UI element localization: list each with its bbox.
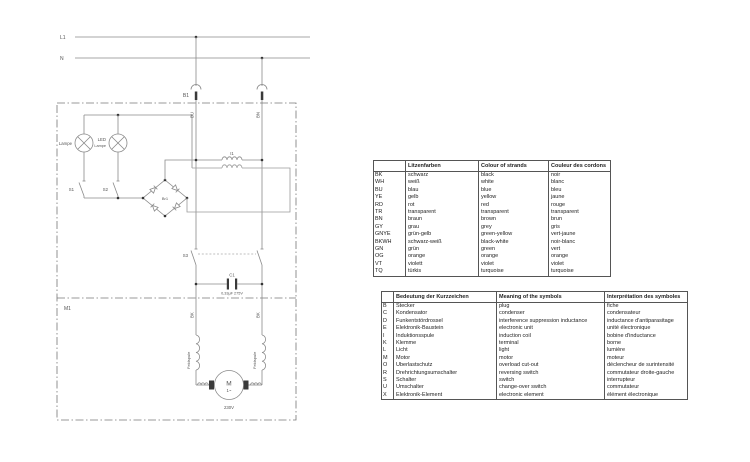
wire-color-row: BU blau blue bleu — [374, 187, 611, 194]
cell-german: blau — [406, 187, 479, 194]
cell-english: overload cut-out — [497, 362, 605, 369]
cell-german: Schalter — [394, 377, 497, 384]
header-code — [374, 161, 406, 172]
capacitor-c1 — [195, 279, 264, 290]
cell-french: borne — [605, 340, 688, 347]
switch-s2-label: S2 — [103, 187, 109, 192]
cell-french: fiche — [605, 303, 688, 311]
cell-english: electronic unit — [497, 325, 605, 332]
motor-voltage: 230V — [224, 405, 234, 410]
header-english: Meaning of the symbols — [497, 292, 605, 303]
led-lamp-label-2: Lampe — [94, 144, 106, 148]
cell-english: reversing switch — [497, 370, 605, 377]
cell-code: BU — [374, 187, 406, 194]
switch-s3-label: S3 — [183, 253, 189, 258]
cell-code: X — [382, 392, 394, 400]
switch-s1 — [79, 181, 86, 198]
cell-german: Elektronik-Element — [394, 392, 497, 400]
cell-german: Stecker — [394, 303, 497, 311]
cell-code: M — [382, 355, 394, 362]
wire-color-row: TR transparent transparent transparent — [374, 209, 611, 216]
header-french: Interprétation des symboles — [605, 292, 688, 303]
cell-french: transparent — [549, 209, 611, 216]
cell-english: green — [479, 246, 549, 253]
cell-code: BKWH — [374, 239, 406, 246]
cell-french: interrupteur — [605, 377, 688, 384]
cell-code: GN — [374, 246, 406, 253]
cell-english: condenser — [497, 310, 605, 317]
cell-german: grün-gelb — [406, 231, 479, 238]
cell-code: U — [382, 384, 394, 391]
cell-english: grey — [479, 224, 549, 231]
cell-french: gris — [549, 224, 611, 231]
bridge-label: Br1 — [162, 196, 169, 201]
wire-color-label-bk-right: BK — [256, 312, 261, 318]
field-coil-label-left: Feldspule — [186, 351, 191, 369]
cell-french: violet — [549, 261, 611, 268]
cell-german: gelb — [406, 194, 479, 201]
symbol-row: X Elektronik-Element electronic element … — [382, 392, 688, 400]
wire-color-row: GNYE grün-gelb green-yellow vert-jaune — [374, 231, 611, 238]
cell-code: BN — [374, 216, 406, 223]
choke-label: I1 — [230, 151, 234, 156]
cell-french: vert-jaune — [549, 231, 611, 238]
symbol-row: L Licht light lumière — [382, 347, 688, 354]
led-lamp-symbol — [109, 115, 127, 181]
symbol-row: O Überlastschutz overload cut-out déclen… — [382, 362, 688, 369]
cell-german: rot — [406, 202, 479, 209]
cell-french: turquoise — [549, 268, 611, 276]
header-english: Colour of strands — [479, 161, 549, 172]
symbol-row: M Motor motor moteur — [382, 355, 688, 362]
cell-german: grau — [406, 224, 479, 231]
cell-german: transparent — [406, 209, 479, 216]
cell-french: bleu — [549, 187, 611, 194]
symbol-row: K Klemme terminal borne — [382, 340, 688, 347]
cell-english: induction coil — [497, 333, 605, 340]
wire-color-row: OG orange orange orange — [374, 253, 611, 260]
module-label: M1 — [64, 306, 71, 312]
cell-french: condensateur — [605, 310, 688, 317]
cell-german: Funkentstördrossel — [394, 318, 497, 325]
n-line-label: N — [60, 56, 64, 62]
enclosure-border — [57, 103, 296, 420]
cell-german: weiß — [406, 179, 479, 186]
cell-english: electronic element — [497, 392, 605, 400]
cell-english: black-white — [479, 239, 549, 246]
cell-french: noir — [549, 172, 611, 180]
cell-german: Motor — [394, 355, 497, 362]
header-german: Bedeutung der Kurzzeichen — [394, 292, 497, 303]
cell-code: YE — [374, 194, 406, 201]
symbol-row: R Drehrichtungsumschalter reversing swit… — [382, 370, 688, 377]
header-german: Litzenfarben — [406, 161, 479, 172]
cell-french: commutateur — [605, 384, 688, 391]
cell-french: brun — [549, 216, 611, 223]
cell-code: BK — [374, 172, 406, 180]
capacitor-label: C1 — [229, 273, 235, 278]
cell-german: Licht — [394, 347, 497, 354]
cell-english: interference suppression inductance — [497, 318, 605, 325]
capacitor-value: 0,33µF 275V — [221, 292, 243, 296]
cell-french: rouge — [549, 202, 611, 209]
cell-code: E — [382, 325, 394, 332]
cell-english: white — [479, 179, 549, 186]
header-code — [382, 292, 394, 303]
plug-connector-left — [191, 85, 201, 250]
cell-german: Umschalter — [394, 384, 497, 391]
wire-color-row: BK schwarz black noir — [374, 172, 611, 180]
cell-code: GY — [374, 224, 406, 231]
cell-code: L — [382, 347, 394, 354]
cell-english: light — [497, 347, 605, 354]
cell-french: bobine d'inductance — [605, 333, 688, 340]
motor-brush-right — [244, 381, 249, 390]
cell-german: violett — [406, 261, 479, 268]
schematic-page: { "diagram": { "l1_label": "L1", "n_labe… — [0, 0, 750, 462]
cell-code: S — [382, 377, 394, 384]
cell-code: R — [382, 370, 394, 377]
cell-english: blue — [479, 187, 549, 194]
field-coil-label-right: Feldspule — [252, 351, 257, 369]
cell-german: Elektronik-Baustein — [394, 325, 497, 332]
junction-dot — [117, 197, 120, 200]
symbol-table-header-row: Bedeutung der Kurzzeichen Meaning of the… — [382, 292, 688, 303]
choke-i1 — [187, 157, 290, 212]
bridge-rectifier-br1 — [142, 160, 196, 217]
plug-connector-right — [257, 85, 267, 250]
header-french: Couleur des cordons — [549, 161, 611, 172]
wire-color-label-bk-left: BK — [190, 312, 195, 318]
cell-english: orange — [479, 253, 549, 260]
cell-english: yellow — [479, 194, 549, 201]
cell-code: VT — [374, 261, 406, 268]
cell-french: vert — [549, 246, 611, 253]
symbol-row: U Umschalter change-over switch commutat… — [382, 384, 688, 391]
wire-color-row: TQ türkis turquoise turquoise — [374, 268, 611, 276]
led-lamp-label-1: LED — [98, 137, 106, 142]
symbol-meaning-table: Bedeutung der Kurzzeichen Meaning of the… — [381, 291, 688, 400]
cell-english: motor — [497, 355, 605, 362]
cell-code: O — [382, 362, 394, 369]
cell-german: türkis — [406, 268, 479, 276]
cell-code: C — [382, 310, 394, 317]
cell-german: Kondensator — [394, 310, 497, 317]
cell-german: Klemme — [394, 340, 497, 347]
symbol-row: D Funkentstördrossel interference suppre… — [382, 318, 688, 325]
cell-english: plug — [497, 303, 605, 311]
symbol-row: B Stecker plug fiche — [382, 303, 688, 311]
cell-french: commutateur droite-gauche — [605, 370, 688, 377]
cell-german: schwarz — [406, 172, 479, 180]
cell-code: K — [382, 340, 394, 347]
cell-code: D — [382, 318, 394, 325]
symbol-row: I Induktionsspule induction coil bobine … — [382, 333, 688, 340]
motor-phase: 1~ — [227, 388, 232, 393]
cell-code: TQ — [374, 268, 406, 276]
cell-english: green-yellow — [479, 231, 549, 238]
plug-label: B1 — [183, 93, 189, 99]
motor-brush-left — [209, 381, 214, 390]
wire-color-row: VT violett violet violet — [374, 261, 611, 268]
wire-color-row: WH weiß white blanc — [374, 179, 611, 186]
wire-color-label-bn: BN — [256, 112, 261, 118]
cell-french: jaune — [549, 194, 611, 201]
cell-english: red — [479, 202, 549, 209]
symbol-row: C Kondensator condenser condensateur — [382, 310, 688, 317]
cell-code: RD — [374, 202, 406, 209]
cell-german: grün — [406, 246, 479, 253]
switch-s1-label: S1 — [69, 187, 75, 192]
symbol-row: S Schalter switch interrupteur — [382, 377, 688, 384]
cell-german: braun — [406, 216, 479, 223]
cell-english: transparent — [479, 209, 549, 216]
cell-french: déclencheur de surintensité — [605, 362, 688, 369]
cell-code: B — [382, 303, 394, 311]
cell-code: TR — [374, 209, 406, 216]
cell-german: Drehrichtungsumschalter — [394, 370, 497, 377]
cell-code: I — [382, 333, 394, 340]
cell-english: violet — [479, 261, 549, 268]
cell-english: switch — [497, 377, 605, 384]
cell-french: moteur — [605, 355, 688, 362]
cell-french: élément électronique — [605, 392, 688, 400]
wire-color-row: GN grün green vert — [374, 246, 611, 253]
wire-color-table: Litzenfarben Colour of strands Couleur d… — [373, 160, 611, 277]
cell-code: OG — [374, 253, 406, 260]
field-coil-symbol-right — [262, 335, 266, 370]
cell-english: black — [479, 172, 549, 180]
wire-color-table-header-row: Litzenfarben Colour of strands Couleur d… — [374, 161, 611, 172]
cell-french: inductance d'antiparasitage — [605, 318, 688, 325]
cell-english: change-over switch — [497, 384, 605, 391]
cell-german: orange — [406, 253, 479, 260]
cell-english: brown — [479, 216, 549, 223]
cell-german: Induktionsspule — [394, 333, 497, 340]
cell-french: orange — [549, 253, 611, 260]
cell-french: unité électronique — [605, 325, 688, 332]
cell-english: terminal — [497, 340, 605, 347]
lamp-label: Lampe — [59, 141, 73, 146]
cell-code: WH — [374, 179, 406, 186]
cell-german: schwarz-weiß — [406, 239, 479, 246]
wire-color-row: RD rot red rouge — [374, 202, 611, 209]
field-coil-symbol-left — [196, 335, 200, 370]
lamp-symbol-left — [75, 115, 93, 181]
motor-letter: M — [226, 381, 231, 388]
cell-english: turquoise — [479, 268, 549, 276]
cell-code: GNYE — [374, 231, 406, 238]
wire-color-row: BKWH schwarz-weiß black-white noir-blanc — [374, 239, 611, 246]
wire-color-row: GY grau grey gris — [374, 224, 611, 231]
switch-s2 — [113, 181, 120, 198]
l1-line-label: L1 — [60, 35, 66, 41]
cell-french: lumière — [605, 347, 688, 354]
wire-color-label-bu: BU — [190, 112, 195, 118]
wire-color-row: YE gelb yellow jaune — [374, 194, 611, 201]
cell-german: Überlastschutz — [394, 362, 497, 369]
cell-french: noir-blanc — [549, 239, 611, 246]
symbol-row: E Elektronik-Baustein electronic unit un… — [382, 325, 688, 332]
wire-color-row: BN braun brown brun — [374, 216, 611, 223]
cell-french: blanc — [549, 179, 611, 186]
